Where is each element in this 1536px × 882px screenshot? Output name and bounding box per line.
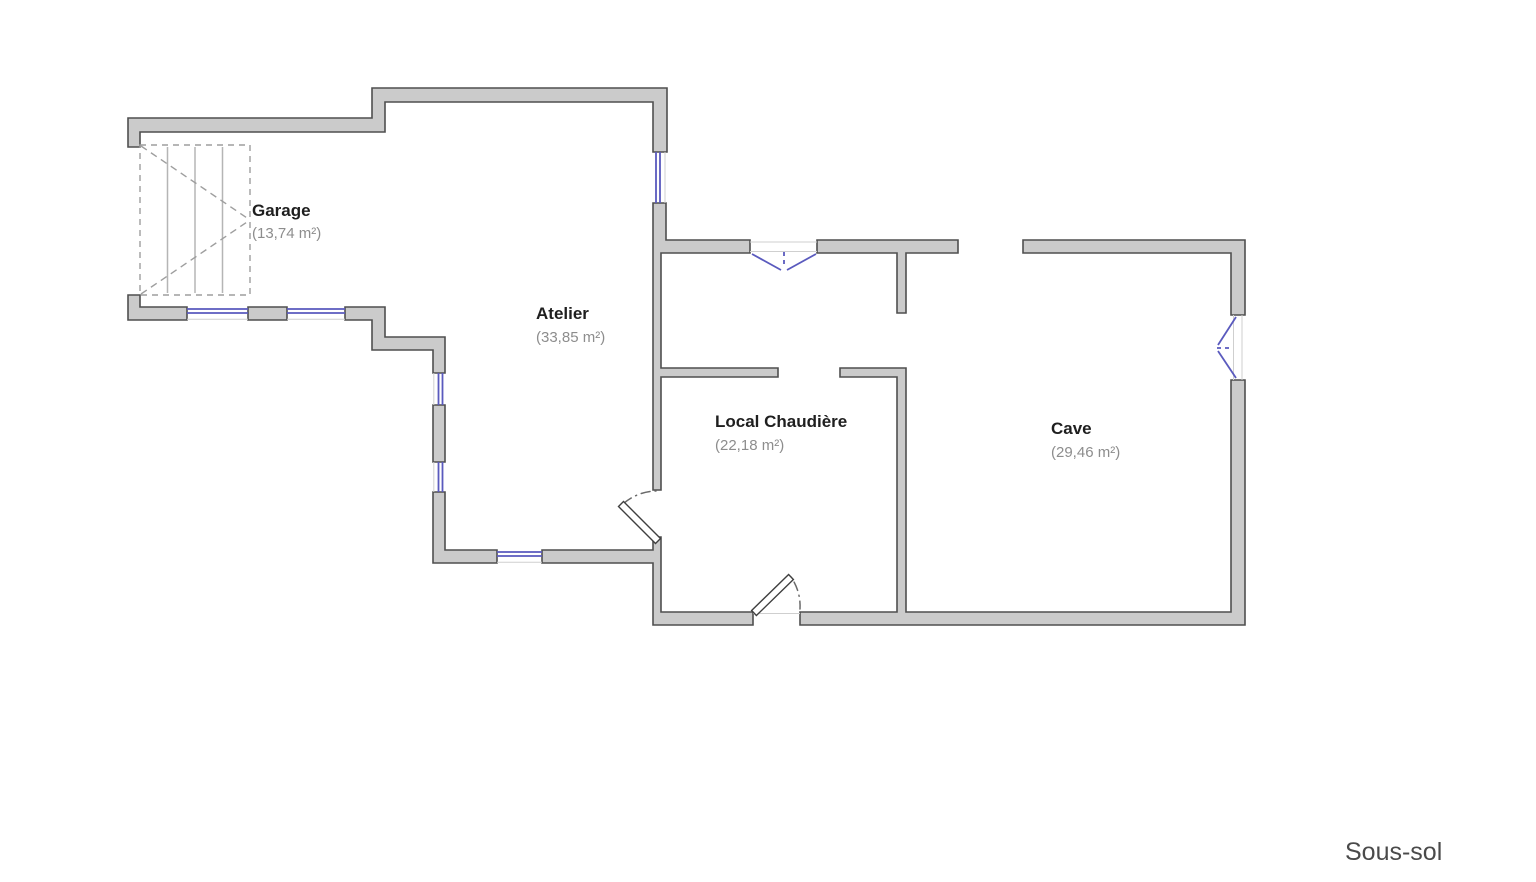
room-name: Atelier — [536, 304, 589, 323]
room-name: Cave — [1051, 419, 1092, 438]
room-area: (29,46 m²) — [1051, 444, 1120, 461]
wall-segment — [542, 537, 753, 625]
wall-segment — [345, 307, 445, 373]
wall-segment — [128, 295, 187, 320]
room-label-local-chaudiere: Local Chaudière (22,18 m²) — [715, 412, 847, 454]
wall-segment — [433, 405, 445, 462]
room-area: (33,85 m²) — [536, 329, 605, 346]
window — [187, 309, 248, 319]
exterior-door — [752, 575, 800, 616]
wall-segment — [1023, 240, 1245, 315]
wall-segment — [248, 307, 287, 320]
room-label-garage: Garage (13,74 m²) — [252, 201, 321, 242]
floor-plan-drawing: Garage (13,74 m²) Atelier (33,85 m²) Loc… — [0, 0, 1536, 882]
room-name: Local Chaudière — [715, 412, 847, 431]
wall-segment — [800, 368, 1245, 625]
interior-door — [619, 491, 661, 544]
walls — [128, 88, 1245, 625]
double-door-cave — [1217, 315, 1242, 380]
room-label-cave: Cave (29,46 m²) — [1051, 419, 1120, 461]
window — [434, 373, 443, 405]
floor-title: Sous-sol — [1345, 838, 1442, 866]
staircase — [140, 145, 250, 295]
room-name: Garage — [252, 201, 311, 220]
doors — [619, 242, 1243, 616]
wall-segment — [128, 88, 667, 152]
double-door-top — [750, 242, 817, 270]
window — [656, 152, 665, 203]
wall-segment — [817, 240, 958, 313]
floor-plan-page: Garage (13,74 m²) Atelier (33,85 m²) Loc… — [0, 0, 1536, 882]
wall-segment — [433, 492, 497, 563]
room-area: (22,18 m²) — [715, 437, 784, 454]
room-label-atelier: Atelier (33,85 m²) — [536, 304, 605, 346]
window — [434, 462, 443, 492]
window — [287, 309, 345, 319]
room-area: (13,74 m²) — [252, 225, 321, 242]
window — [497, 552, 542, 562]
